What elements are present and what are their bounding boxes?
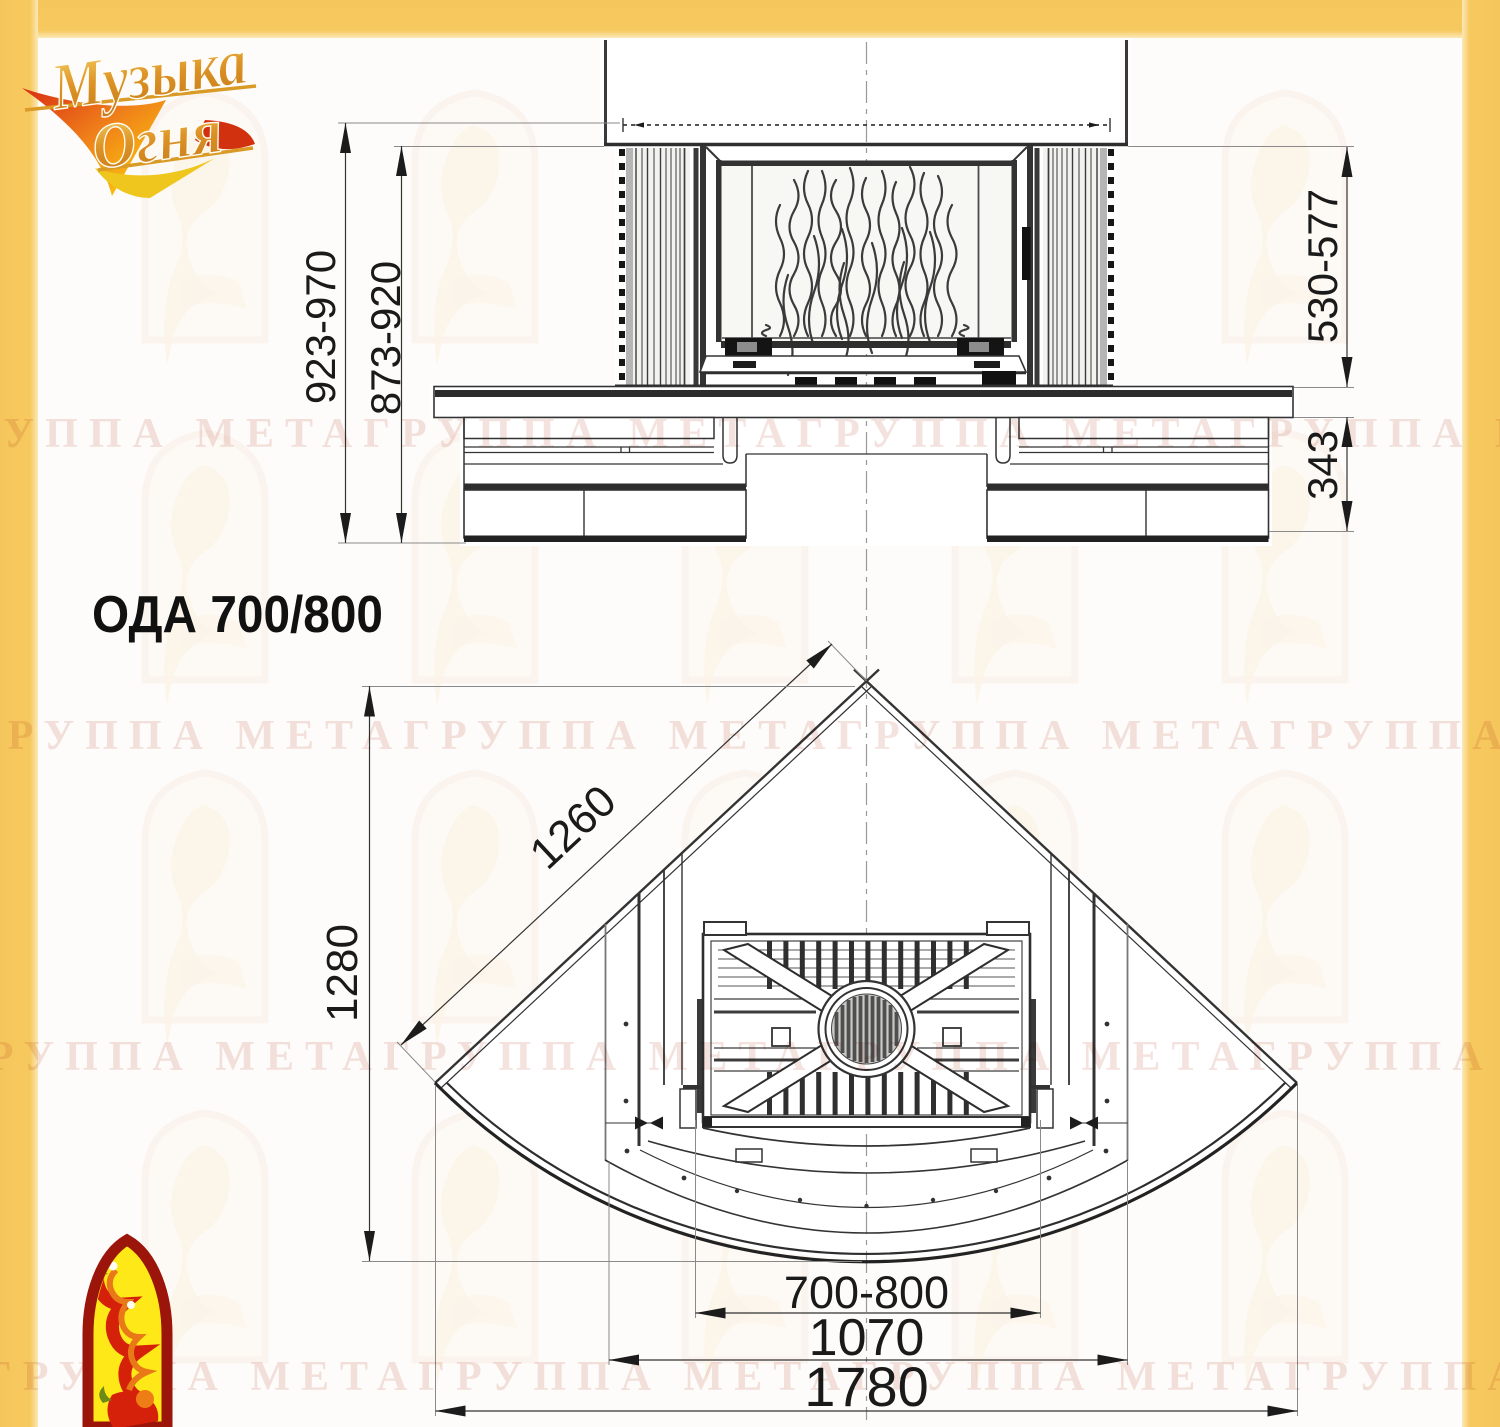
svg-text:ГРУППА МЕТАГРУППА МЕТАГРУППА М: ГРУППА МЕТАГРУППА МЕТАГРУППА МЕТАГРУППА …	[0, 1354, 1500, 1400]
svg-text:873-920: 873-920	[362, 261, 409, 415]
svg-text:1280: 1280	[318, 924, 367, 1022]
svg-text:ГРУППА МЕТАГРУППА МЕТАГРУППА М: ГРУППА МЕТАГРУППА МЕТАГРУППА МЕТАГРУППА …	[0, 411, 1500, 457]
svg-text:ГРУППА МЕТАГРУППА МЕТАГРУППА М: ГРУППА МЕТАГРУППА МЕТАГРУППА МЕТАГРУППА …	[0, 713, 1500, 759]
svg-text:ОДА 700/800: ОДА 700/800	[92, 586, 383, 644]
svg-text:923-970: 923-970	[297, 250, 344, 404]
svg-text:ГРУППА МЕТАГРУППА МЕТАГРУППА М: ГРУППА МЕТАГРУППА МЕТАГРУППА МЕТАГРУППА …	[0, 1034, 1500, 1080]
svg-text:530-577: 530-577	[1299, 189, 1346, 343]
